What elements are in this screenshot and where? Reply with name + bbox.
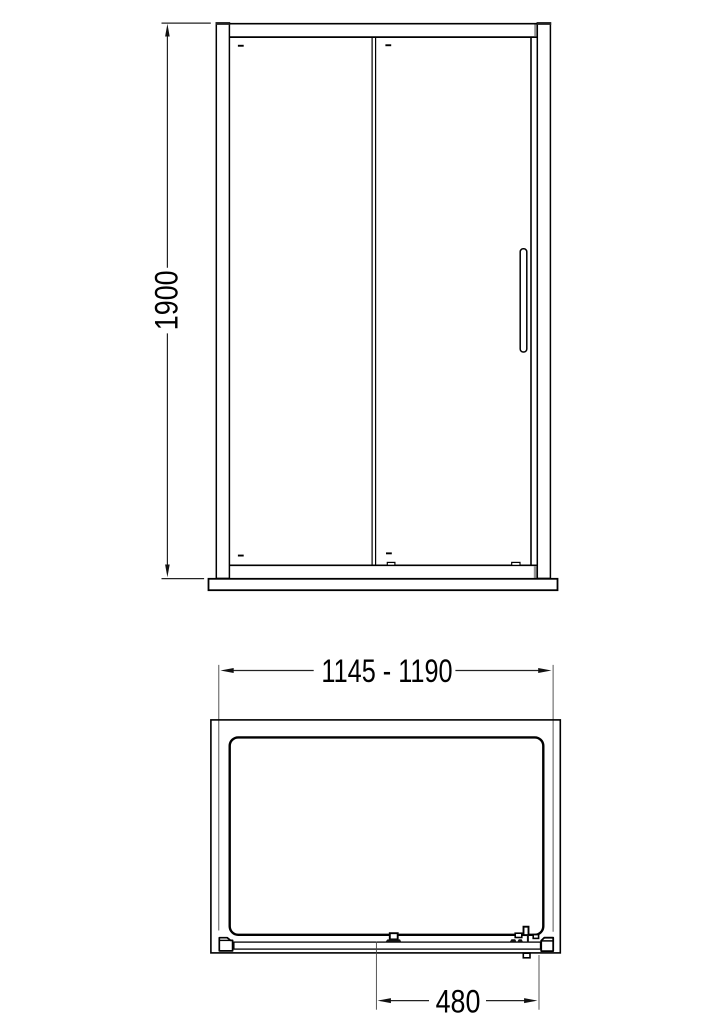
svg-text:1900: 1900 [149, 270, 185, 330]
svg-text:1145 - 1190: 1145 - 1190 [321, 654, 452, 690]
svg-text:480: 480 [436, 984, 481, 1020]
